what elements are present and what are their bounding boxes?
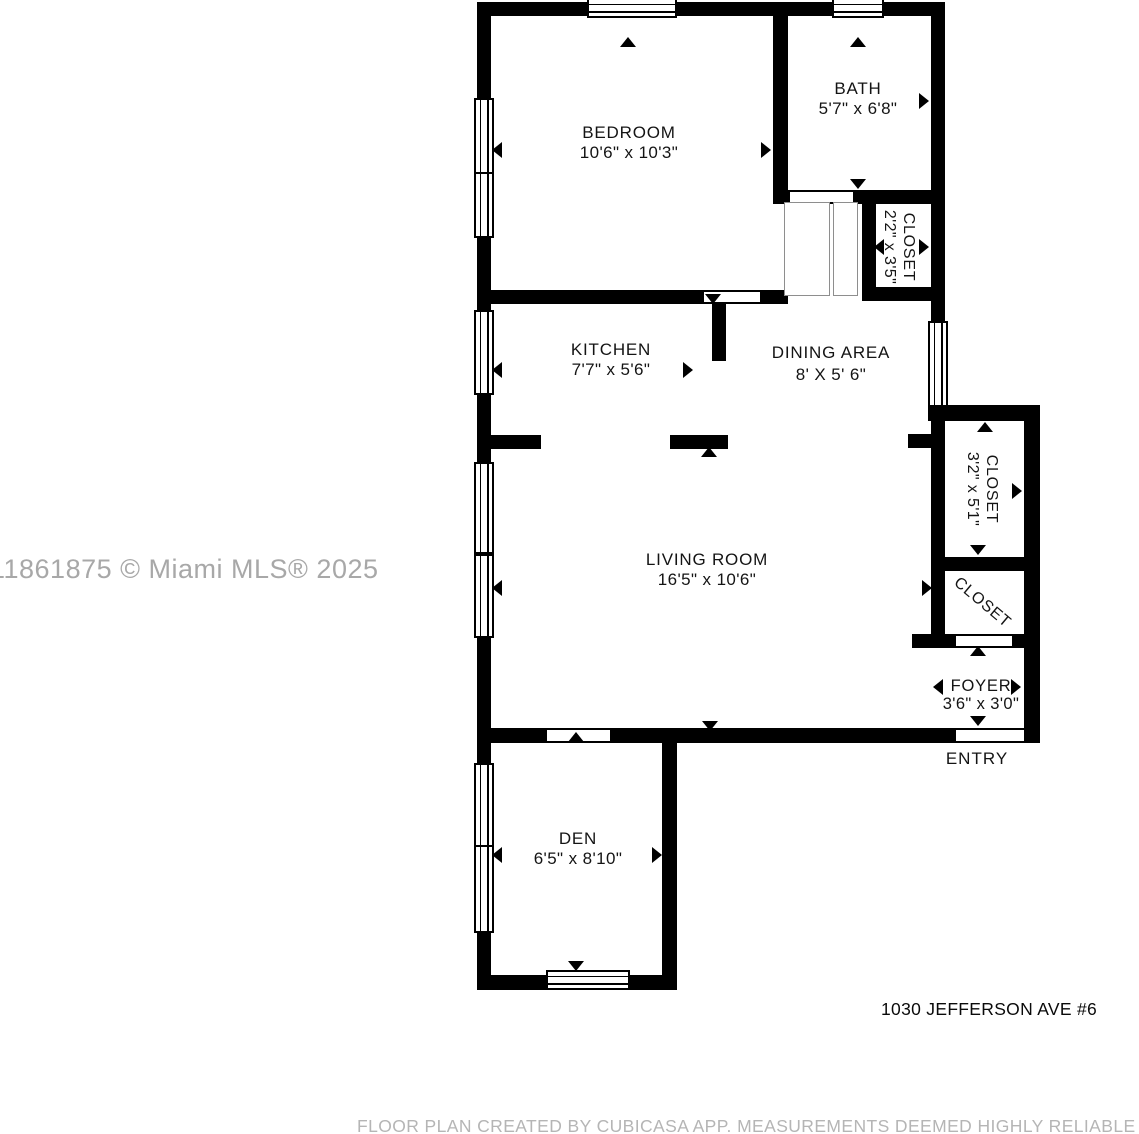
- wall: [931, 405, 945, 648]
- room-name: CLOSET: [982, 452, 1001, 526]
- room-label-den: DEN 6'5" x 8'10": [534, 829, 623, 869]
- wall: [1012, 634, 1040, 648]
- door-arrow-icon: [777, 93, 787, 109]
- window: [474, 845, 494, 933]
- door-arrow-icon: [492, 847, 502, 863]
- wall: [491, 435, 541, 449]
- window: [832, 0, 884, 18]
- window: [546, 970, 630, 990]
- door-arrow-icon: [934, 480, 944, 496]
- room-name: FOYER: [943, 677, 1020, 695]
- door-arrow-icon: [492, 142, 502, 158]
- room-dims: 3'6" x 3'0": [943, 695, 1020, 713]
- door-arrow-icon: [683, 362, 693, 378]
- mls-watermark: 11861875 © Miami MLS® 2025: [0, 554, 379, 585]
- room-dims: 6'5" x 8'10": [534, 849, 623, 869]
- window: [474, 310, 494, 395]
- door-arrow-icon: [850, 37, 866, 47]
- wall: [610, 728, 956, 743]
- wall: [908, 434, 931, 448]
- door-arrow-icon: [922, 580, 932, 596]
- entry-label: ENTRY: [946, 749, 1008, 769]
- floor-plan: BEDROOM 10'6" x 10'3" BATH 5'7" x 6'8" C…: [0, 0, 1139, 1134]
- door-opening: [956, 728, 1024, 743]
- window: [474, 763, 494, 847]
- door-arrow-icon: [919, 93, 929, 109]
- room-dims: 10'6" x 10'3": [580, 143, 678, 163]
- wall: [712, 304, 726, 361]
- door-leaf: [784, 202, 830, 296]
- room-label-bath: BATH 5'7" x 6'8": [819, 79, 898, 119]
- room-name: CLOSET: [899, 210, 918, 284]
- door-arrow-icon: [492, 580, 502, 596]
- door-arrow-icon: [933, 679, 943, 695]
- door-arrow-icon: [652, 847, 662, 863]
- room-name: BATH: [819, 79, 898, 99]
- room-label-living: LIVING ROOM 16'5" x 10'6": [646, 550, 768, 590]
- wall: [477, 728, 547, 743]
- door-arrow-icon: [919, 239, 929, 255]
- room-name: KITCHEN: [571, 340, 651, 360]
- wall: [931, 557, 1040, 571]
- room-label-closet-hall: CLOSET 2'2" x 3'5": [880, 210, 918, 284]
- door-arrow-icon: [970, 545, 986, 555]
- window: [474, 462, 494, 554]
- room-dims: 7'7" x 5'6": [571, 360, 651, 380]
- door-arrow-icon: [701, 447, 717, 457]
- door-arrow-icon: [568, 961, 584, 971]
- door-arrow-icon: [705, 294, 721, 304]
- door-arrow-icon: [620, 37, 636, 47]
- room-label-dining: DINING AREA 8' X 5' 6": [772, 342, 890, 386]
- door-arrow-icon: [761, 142, 771, 158]
- window: [474, 98, 494, 174]
- wall: [1024, 405, 1040, 743]
- window: [474, 172, 494, 238]
- room-label-bedroom: BEDROOM 10'6" x 10'3": [580, 123, 678, 163]
- wall: [670, 435, 728, 449]
- window: [474, 554, 494, 638]
- window: [928, 321, 948, 407]
- room-name: BEDROOM: [580, 123, 678, 143]
- room-label-closet-small: CLOSET: [949, 573, 1015, 633]
- address-label: 1030 JEFFERSON AVE #6: [881, 999, 1097, 1020]
- room-dims: 8' X 5' 6": [772, 364, 890, 386]
- door-arrow-icon: [492, 362, 502, 378]
- wall: [862, 287, 945, 301]
- room-dims: 2'2" x 3'5": [880, 210, 899, 284]
- wall: [931, 2, 945, 323]
- door-arrow-icon: [970, 716, 986, 726]
- wall: [477, 290, 704, 304]
- room-name: DINING AREA: [772, 342, 890, 364]
- wall: [912, 634, 956, 648]
- window: [587, 0, 677, 18]
- room-dims: 5'7" x 6'8": [819, 99, 898, 119]
- door-arrow-icon: [1012, 483, 1022, 499]
- room-label-closet-tall: CLOSET 3'2" x 5'1": [963, 452, 1001, 526]
- door-arrow-icon: [850, 179, 866, 189]
- door-arrow-icon: [977, 422, 993, 432]
- door-arrow-icon: [970, 646, 986, 656]
- room-dims: 3'2" x 5'1": [963, 452, 982, 526]
- room-name: CLOSET: [949, 573, 1015, 633]
- room-name: DEN: [534, 829, 623, 849]
- wall: [853, 190, 945, 204]
- wall: [662, 743, 677, 990]
- room-label-kitchen: KITCHEN 7'7" x 5'6": [571, 340, 651, 380]
- room-dims: 16'5" x 10'6": [646, 570, 768, 590]
- disclaimer-text: FLOOR PLAN CREATED BY CUBICASA APP. MEAS…: [357, 1116, 1139, 1134]
- door-arrow-icon: [568, 732, 584, 742]
- room-name: LIVING ROOM: [646, 550, 768, 570]
- door-leaf: [833, 202, 858, 296]
- room-label-foyer: FOYER 3'6" x 3'0": [943, 677, 1020, 713]
- door-arrow-icon: [702, 721, 718, 731]
